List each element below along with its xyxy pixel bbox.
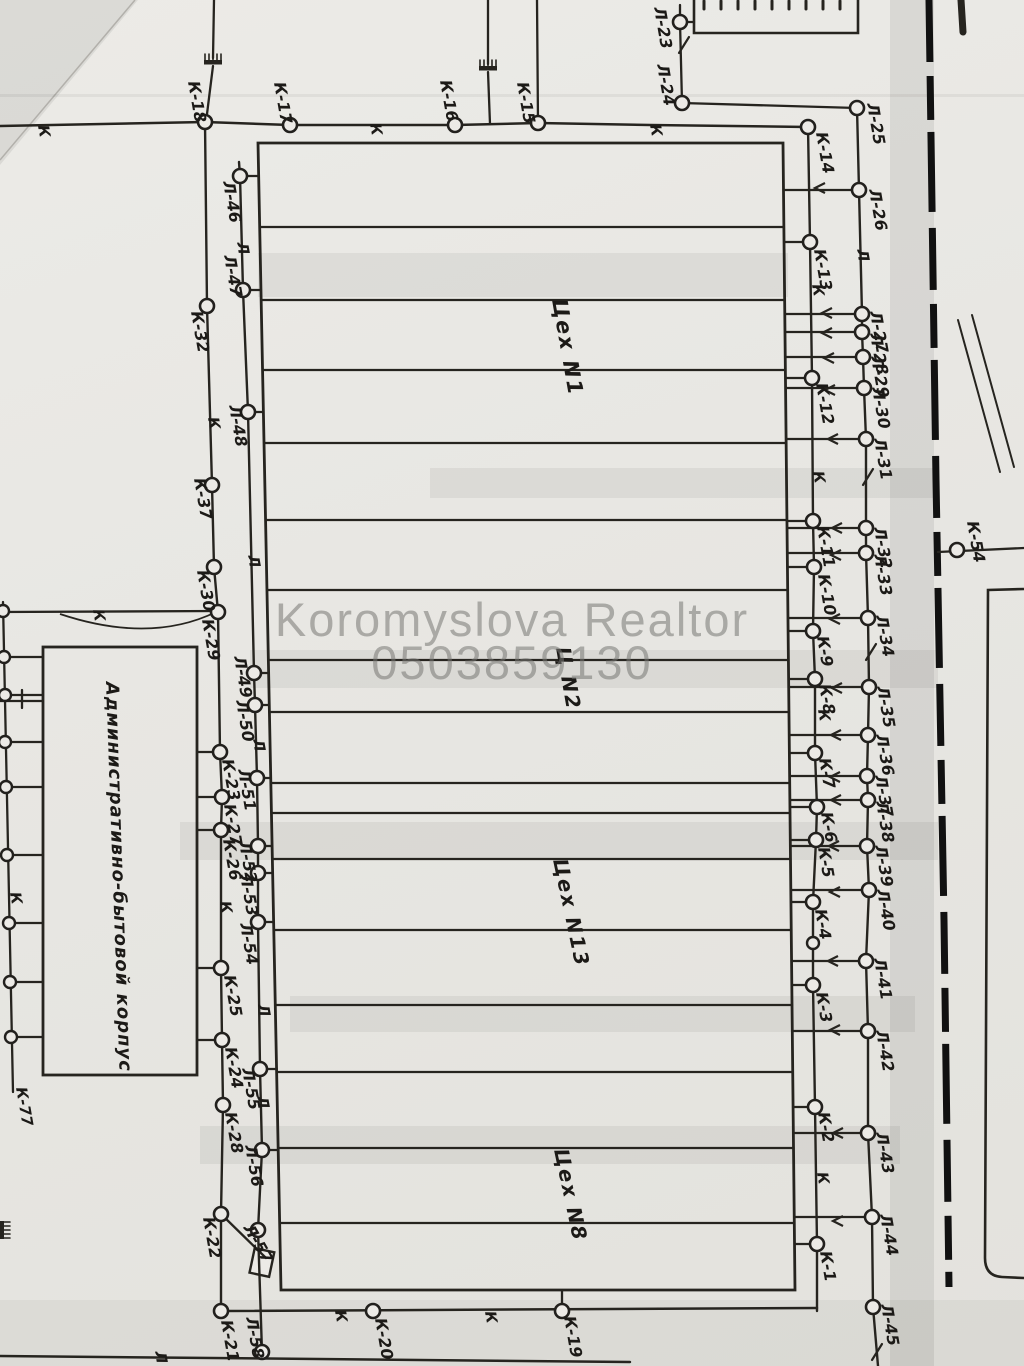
line-marker-label: К [216, 900, 236, 916]
node-label-К-10: К-10 [814, 572, 840, 617]
manhole-К-10 [807, 560, 821, 574]
paper-crease [0, 94, 1024, 97]
main-workshop-building [258, 143, 795, 1290]
manhole-К-23 [213, 745, 227, 759]
line-marker-label: Л [244, 553, 264, 570]
flow-arrow [815, 183, 825, 193]
pipe-segment [213, 0, 214, 58]
line-marker-label: К [808, 283, 828, 299]
manhole-К-1 [810, 1237, 824, 1251]
flow-arrow [830, 887, 840, 897]
node-label-Л-26: Л-26 [865, 186, 891, 232]
node-label-К-7: К-7 [815, 756, 839, 791]
node-label-К-18: К-18 [184, 79, 210, 124]
shop-label: Цех N1 [547, 297, 588, 398]
site-plan-drawing: К-18К-17К-16К-15К-14К-32К-37К-30К-29К-23… [0, 0, 1024, 1366]
line-end-cap [0, 1221, 10, 1239]
manhole-Л-23 [673, 15, 687, 29]
line-marker-label: Л [233, 240, 253, 257]
manhole-К-24 [215, 1033, 229, 1047]
top-right-building [694, 0, 858, 33]
manhole-unlabeled [0, 689, 11, 701]
manhole-Л-25 [850, 101, 864, 115]
manhole-К-13 [803, 235, 817, 249]
line-marker-label: К [814, 708, 834, 724]
line-marker-label: К [6, 891, 26, 907]
node-label-К-1: К-1 [816, 1249, 840, 1283]
manhole-К-20 [366, 1304, 380, 1318]
line-marker-label: К [34, 124, 54, 140]
manhole-К-25 [214, 961, 228, 975]
node-label-Л-23: Л-23 [650, 4, 676, 50]
node-label-К-17: К-17 [270, 80, 296, 125]
node-label-К-14: К-14 [812, 130, 838, 175]
line-marker-label: Л [254, 1002, 274, 1019]
manhole-Л-26 [852, 183, 866, 197]
manhole-К-54 [950, 543, 964, 557]
line-end-cap [479, 60, 497, 71]
manhole-К-3 [806, 978, 820, 992]
manhole-К-4 [806, 895, 820, 909]
pipe-segment [3, 602, 13, 1092]
manhole-К-21 [214, 1304, 228, 1318]
node-label-К-5: К-5 [814, 845, 838, 879]
node-label-К-77: К-77 [12, 1086, 37, 1128]
shop-label: Цех N13 [548, 856, 594, 969]
right-edge-building [985, 589, 1024, 1278]
photocopy-smudge [258, 253, 788, 297]
railroad-dash [961, 0, 963, 32]
pipe-segment [488, 72, 490, 124]
manhole-unlabeled [0, 781, 12, 793]
line-marker-label: К [366, 122, 386, 138]
line-marker-label: К [646, 123, 666, 139]
line-end-cap [204, 54, 222, 65]
admin-building-label: Административно-бытовой корпус [101, 679, 136, 1072]
manhole-unlabeled [4, 976, 16, 988]
pipe-segment [537, 0, 538, 123]
node-label-Л-24: Л-24 [653, 61, 679, 107]
node-label-К-54: К-54 [963, 519, 989, 564]
node-label-Л-25: Л-25 [863, 100, 889, 146]
paper-corner-shadow [0, 0, 138, 165]
line-marker-label: Л [853, 247, 873, 264]
node-label-К-16: К-16 [436, 78, 462, 123]
photocopy-smudge [430, 468, 935, 498]
manhole-К-28 [216, 1098, 230, 1112]
manhole-unlabeled [5, 1031, 17, 1043]
manhole-unlabeled [1, 849, 13, 861]
blueprint-photo: { "watermark": { "line1": "Koromyslova R… [0, 0, 1024, 1366]
line-marker-label: К [89, 608, 109, 624]
manhole-unlabeled [0, 736, 11, 748]
pipe-segment [682, 103, 857, 108]
manhole-unlabeled [0, 651, 10, 663]
freehand-correction [60, 612, 216, 629]
pipe-segment [0, 611, 218, 612]
node-label-К-25: К-25 [220, 973, 246, 1018]
node-label-К-32: К-32 [187, 309, 213, 354]
node-label-К-29: К-29 [198, 617, 224, 662]
pipe-segment [680, 22, 682, 103]
node-label-К-15: К-15 [513, 80, 539, 125]
manhole-К-14 [801, 120, 815, 134]
manhole-unlabeled [0, 605, 9, 617]
manhole-unlabeled [3, 917, 15, 929]
line-marker-label: К [204, 416, 224, 432]
k-main-line-top [0, 122, 808, 127]
line-marker-label: К [813, 1171, 833, 1187]
